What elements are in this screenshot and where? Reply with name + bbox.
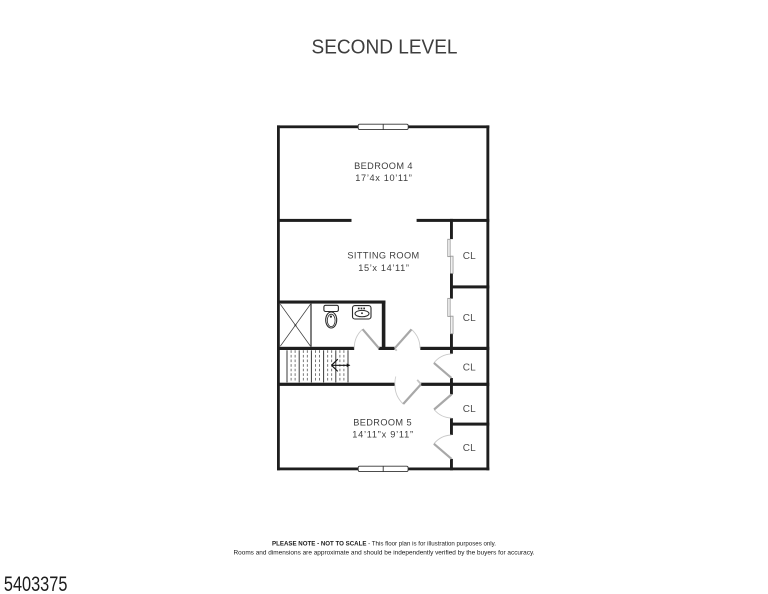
svg-text:17’4x 10’11”: 17’4x 10’11”	[355, 173, 412, 183]
svg-text:BEDROOM 4: BEDROOM 4	[354, 161, 413, 171]
svg-text:BEDROOM 5: BEDROOM 5	[353, 418, 412, 428]
svg-text:15’x 14’11”: 15’x 14’11”	[358, 263, 409, 273]
svg-text:CL: CL	[463, 404, 476, 415]
svg-text:CL: CL	[463, 251, 476, 262]
svg-text:SECOND LEVEL: SECOND LEVEL	[312, 36, 458, 59]
svg-text:CL: CL	[463, 363, 476, 374]
svg-text:SITTING ROOM: SITTING ROOM	[347, 251, 419, 261]
svg-text:CL: CL	[463, 313, 476, 324]
svg-text:14’11”x 9’11”: 14’11”x 9’11”	[352, 430, 414, 440]
svg-text:Rooms and dimensions are appro: Rooms and dimensions are approximate and…	[234, 549, 535, 556]
svg-text:5403375: 5403375	[4, 573, 68, 594]
svg-text:CL: CL	[463, 443, 476, 454]
svg-text:PLEASE NOTE - NOT TO SCALE - T: PLEASE NOTE - NOT TO SCALE - This floor …	[272, 541, 496, 548]
